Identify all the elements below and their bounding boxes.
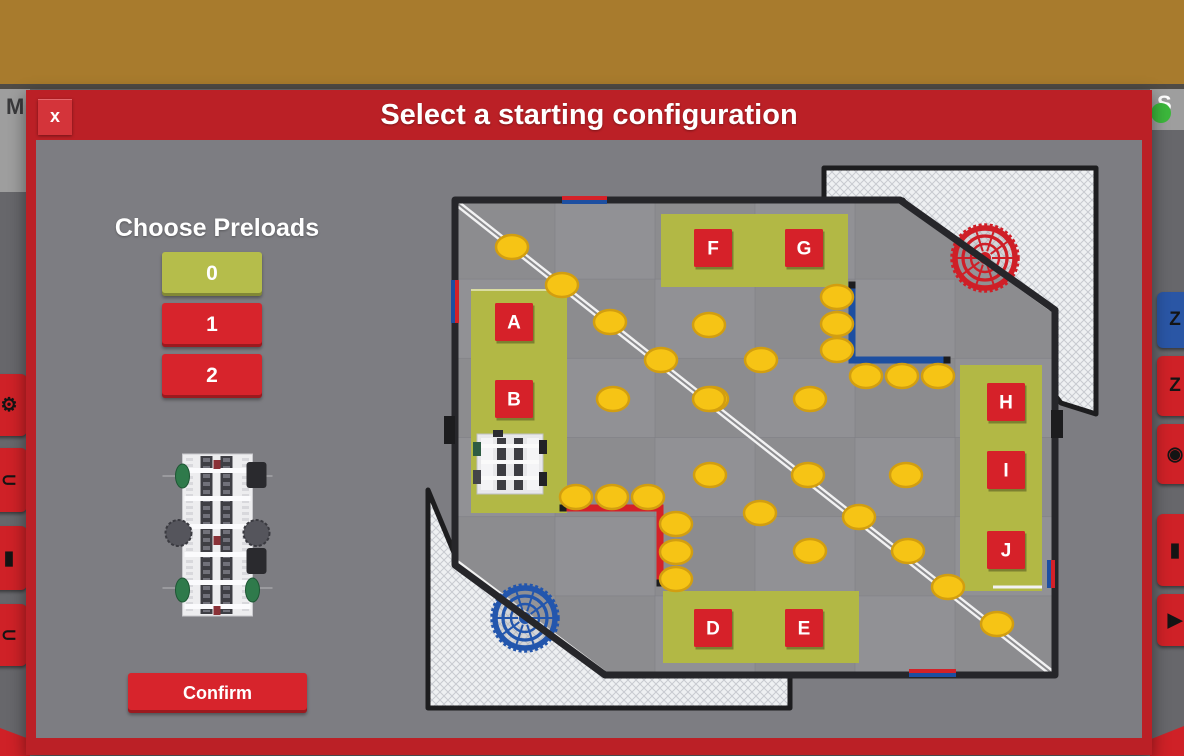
left-bar-button[interactable]: ▮ bbox=[0, 526, 27, 590]
tool-icon: ▮ bbox=[1170, 539, 1180, 562]
disc bbox=[660, 540, 692, 564]
zone-area bbox=[663, 591, 859, 663]
start-position-J[interactable]: J bbox=[987, 531, 1027, 572]
disc bbox=[546, 273, 578, 297]
start-position-label: G bbox=[797, 239, 812, 260]
preload-option-0[interactable]: 0 bbox=[162, 252, 262, 296]
z-icon: Z bbox=[1169, 375, 1181, 397]
start-position-H[interactable]: H bbox=[987, 383, 1027, 424]
arc-icon: ⊂ bbox=[1, 469, 17, 492]
disc bbox=[597, 387, 629, 411]
start-position-G[interactable]: G bbox=[785, 229, 825, 270]
left-arc-button[interactable]: ⊂ bbox=[0, 448, 27, 512]
disc bbox=[821, 312, 853, 336]
preloads-heading: Choose Preloads bbox=[72, 214, 362, 243]
start-position-label: J bbox=[1001, 541, 1012, 562]
start-position-label: E bbox=[798, 619, 811, 640]
disc bbox=[932, 575, 964, 599]
disc bbox=[693, 387, 725, 411]
start-position-label: I bbox=[1003, 461, 1008, 482]
disc bbox=[660, 512, 692, 536]
left-panel-letter: M bbox=[6, 94, 24, 120]
right-z-button[interactable]: Z bbox=[1157, 356, 1184, 416]
disc bbox=[744, 501, 776, 525]
dialog-header: x Select a starting configuration bbox=[26, 90, 1152, 140]
disc bbox=[892, 539, 924, 563]
right-sleep-button[interactable]: Z bbox=[1157, 292, 1184, 348]
triangle-icon: ▶ bbox=[1168, 609, 1183, 632]
dialog-close-button[interactable]: x bbox=[38, 99, 72, 135]
right-tool-button[interactable]: ▮ bbox=[1157, 514, 1184, 586]
start-position-B[interactable]: B bbox=[495, 380, 535, 421]
disc bbox=[693, 313, 725, 337]
preload-option-1[interactable]: 1 bbox=[162, 303, 262, 347]
eye-icon: ◉ bbox=[1167, 443, 1184, 466]
z-icon: Z bbox=[1169, 309, 1181, 331]
disc bbox=[886, 364, 918, 388]
start-position-label: B bbox=[507, 390, 521, 411]
disc bbox=[694, 463, 726, 487]
disc bbox=[645, 348, 677, 372]
start-position-label: A bbox=[507, 313, 521, 334]
disc bbox=[496, 235, 528, 259]
disc bbox=[850, 364, 882, 388]
wall-tab bbox=[1051, 410, 1063, 438]
disc bbox=[792, 463, 824, 487]
dialog-body: Choose Preloads 012 bbox=[36, 140, 1142, 738]
disc bbox=[596, 485, 628, 509]
field-robot bbox=[473, 430, 547, 494]
robot-preview-image bbox=[162, 448, 273, 623]
arc-icon: ⊂ bbox=[1, 624, 17, 647]
start-position-E[interactable]: E bbox=[785, 609, 825, 650]
dialog-title: Select a starting configuration bbox=[26, 90, 1152, 140]
gear-icon: ⚙ bbox=[0, 394, 17, 417]
disc bbox=[890, 463, 922, 487]
field-map: ABFGHIJDE bbox=[420, 160, 1110, 720]
bar-icon: ▮ bbox=[4, 547, 14, 570]
disc bbox=[843, 505, 875, 529]
disc bbox=[821, 285, 853, 309]
disc bbox=[594, 310, 626, 334]
disc bbox=[922, 364, 954, 388]
start-position-D[interactable]: D bbox=[694, 609, 734, 650]
start-position-label: D bbox=[706, 619, 720, 640]
disc bbox=[560, 485, 592, 509]
disc bbox=[794, 539, 826, 563]
status-green-dot bbox=[1151, 103, 1171, 123]
disc bbox=[981, 612, 1013, 636]
disc bbox=[821, 338, 853, 362]
right-play-button[interactable]: ▶ bbox=[1157, 594, 1184, 646]
disc bbox=[745, 348, 777, 372]
preload-option-2[interactable]: 2 bbox=[162, 354, 262, 398]
left-gear-button[interactable]: ⚙ bbox=[0, 374, 27, 436]
start-position-label: H bbox=[999, 393, 1013, 414]
right-eye-button[interactable]: ◉ bbox=[1157, 424, 1184, 484]
top-toolbar bbox=[0, 0, 1184, 84]
left-arc2-button[interactable]: ⊂ bbox=[0, 604, 27, 666]
start-position-I[interactable]: I bbox=[987, 451, 1027, 492]
wall-tab bbox=[444, 416, 455, 444]
starting-configuration-dialog: x Select a starting configuration Choose… bbox=[26, 90, 1152, 755]
start-position-label: F bbox=[707, 239, 719, 260]
confirm-button[interactable]: Confirm bbox=[128, 673, 307, 713]
disc bbox=[632, 485, 664, 509]
disc bbox=[660, 567, 692, 591]
disc bbox=[794, 387, 826, 411]
start-position-F[interactable]: F bbox=[694, 229, 734, 270]
toolbar-divider bbox=[0, 84, 1184, 89]
start-position-A[interactable]: A bbox=[495, 303, 535, 344]
